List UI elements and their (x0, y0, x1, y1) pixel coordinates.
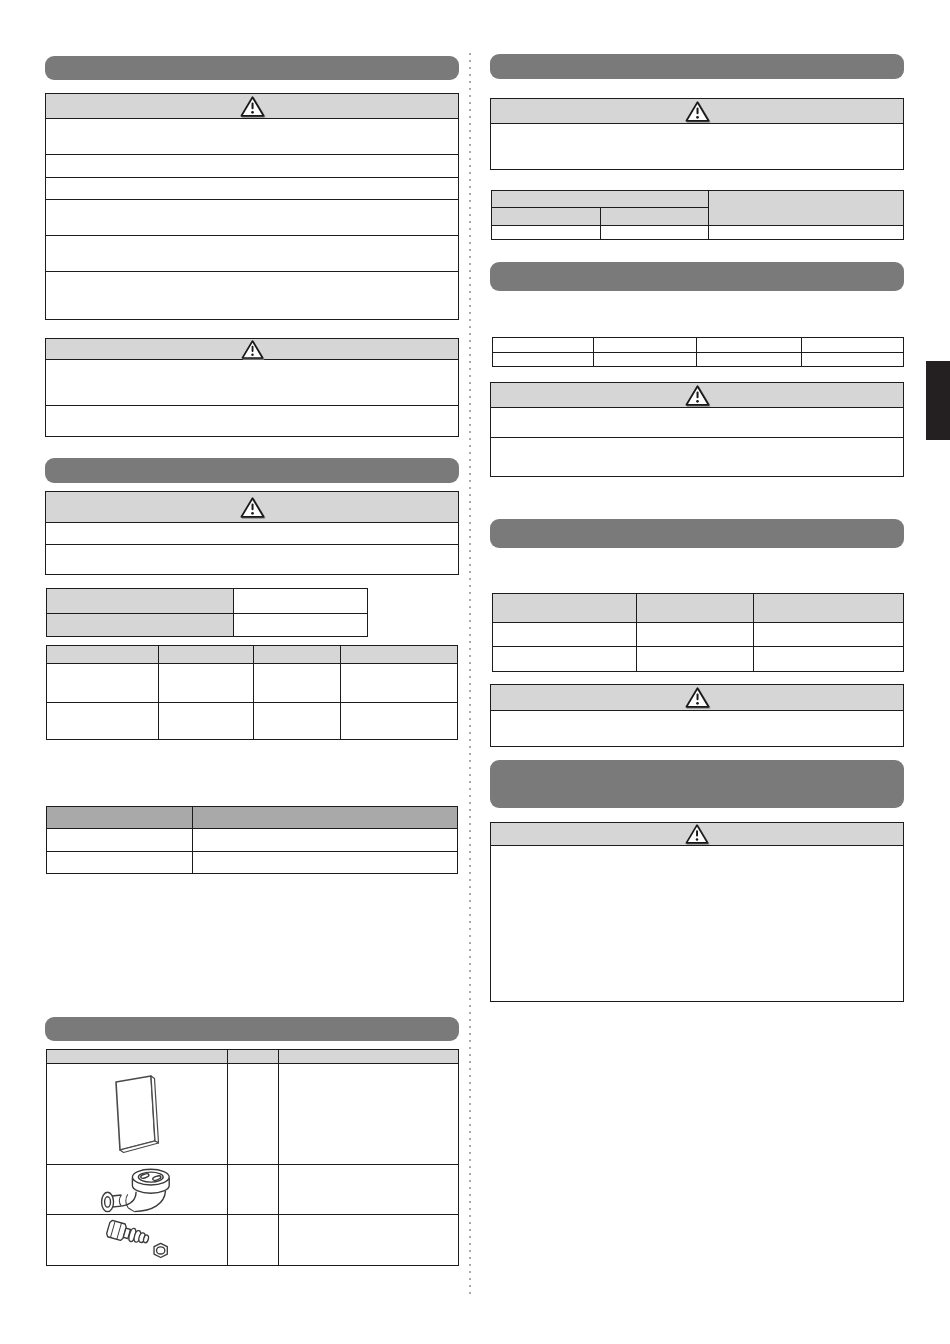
accessory-desc-cell (279, 1064, 458, 1165)
pipe-fitting-image (101, 1218, 173, 1262)
four-column-table (46, 645, 458, 740)
table-cell (493, 353, 594, 366)
table-cell (47, 664, 159, 703)
warning-item (491, 846, 903, 1001)
accessory-image-cell (47, 1165, 228, 1215)
drain-elbow-image (94, 1167, 180, 1213)
table-cell (754, 647, 903, 671)
table-cell (193, 852, 457, 873)
three-column-table (492, 593, 904, 672)
section-header-bar (490, 54, 904, 79)
column-divider-dotted-line (469, 53, 471, 1298)
table-cell (47, 829, 193, 852)
table-label-cell (47, 614, 234, 636)
warning-triangle-icon (240, 339, 265, 360)
caution-box-header (491, 383, 903, 408)
table-subheader-cell (601, 208, 709, 226)
warning-item (46, 178, 458, 200)
caution-item (46, 523, 458, 545)
caution-box (45, 338, 459, 437)
section-header-bar (45, 56, 459, 80)
table-rowspan-header-cell (709, 191, 903, 226)
caution-item (46, 545, 458, 574)
table-cell (594, 353, 697, 366)
warning-box (490, 98, 904, 170)
table-header-cell (159, 646, 254, 664)
table-group-header-cell (492, 191, 709, 208)
warning-triangle-icon (684, 686, 711, 709)
table-header-cell (47, 807, 193, 829)
accessory-qty-cell (228, 1165, 279, 1215)
warning-triangle-icon (684, 384, 711, 407)
manual-booklet-image (111, 1072, 163, 1156)
warning-box-header (491, 823, 903, 846)
accessory-desc-cell (279, 1165, 458, 1215)
caution-item (491, 438, 903, 476)
caution-item (46, 360, 458, 406)
table-cell (594, 338, 697, 353)
caution-item (491, 711, 903, 746)
warning-box-header (491, 99, 903, 124)
two-column-table (46, 806, 458, 874)
table-cell (341, 664, 457, 703)
table-cell (193, 829, 457, 852)
accessory-qty-cell (228, 1064, 279, 1165)
accessory-image-cell (47, 1215, 228, 1265)
table-cell (493, 338, 594, 353)
warning-box (490, 822, 904, 1002)
section-header-bar (45, 1017, 459, 1041)
warning-item (46, 272, 458, 319)
caution-box (490, 382, 904, 477)
table-cell (802, 353, 903, 366)
table-header-cell (228, 1050, 279, 1064)
table-cell (254, 703, 341, 739)
warning-box-header (46, 94, 458, 119)
table-header-cell (254, 646, 341, 664)
caution-box-header (46, 492, 458, 523)
caution-item (491, 408, 903, 438)
table-cell (709, 226, 903, 239)
warning-item (46, 200, 458, 236)
table-cell (341, 703, 457, 739)
table-cell (637, 647, 754, 671)
table-cell (254, 664, 341, 703)
caution-box-header (491, 685, 903, 711)
warning-item (46, 236, 458, 272)
section-header-bar (45, 458, 459, 483)
table-cell (492, 226, 601, 239)
table-cell (493, 647, 637, 671)
caution-box (490, 684, 904, 747)
caution-item (46, 406, 458, 436)
section-header-bar (490, 519, 904, 548)
table-cell (754, 623, 903, 647)
table-header-cell (341, 646, 457, 664)
table-header-cell (47, 1050, 228, 1064)
caution-box (45, 491, 459, 575)
table-cell (47, 703, 159, 739)
spec-pair-table (46, 588, 368, 637)
section-header-bar-tall (490, 760, 904, 808)
table-cell (637, 623, 754, 647)
accessory-qty-cell (228, 1215, 279, 1265)
table-value-cell (234, 589, 367, 614)
table-header-cell (493, 594, 637, 623)
warning-item (46, 119, 458, 155)
warning-triangle-icon (239, 95, 266, 118)
table-cell (802, 338, 903, 353)
table-header-cell (47, 646, 159, 664)
warning-triangle-icon (684, 100, 711, 123)
warning-triangle-icon (684, 823, 710, 845)
table-value-cell (234, 614, 367, 636)
accessory-desc-cell (279, 1215, 458, 1265)
table-cell (159, 664, 254, 703)
table-header-cell (279, 1050, 458, 1064)
table-subheader-cell (492, 208, 601, 226)
table-cell (47, 852, 193, 873)
table-label-cell (47, 589, 234, 614)
table-header-cell (754, 594, 903, 623)
warning-item (46, 155, 458, 178)
four-column-table (492, 337, 904, 367)
table-cell (601, 226, 709, 239)
warning-triangle-icon (239, 496, 266, 519)
table-cell (159, 703, 254, 739)
warning-box (45, 93, 459, 320)
table-header-cell (193, 807, 457, 829)
accessory-image-cell (47, 1064, 228, 1165)
table-cell (697, 338, 802, 353)
section-header-bar (490, 262, 904, 291)
table-header-cell (637, 594, 754, 623)
page-edge-index-tab (926, 361, 950, 440)
accessories-table (46, 1049, 459, 1266)
table-cell (697, 353, 802, 366)
manual-page (0, 0, 950, 1344)
merged-header-table (491, 190, 904, 240)
table-cell (493, 623, 637, 647)
warning-item (491, 124, 903, 169)
caution-box-header (46, 339, 458, 360)
